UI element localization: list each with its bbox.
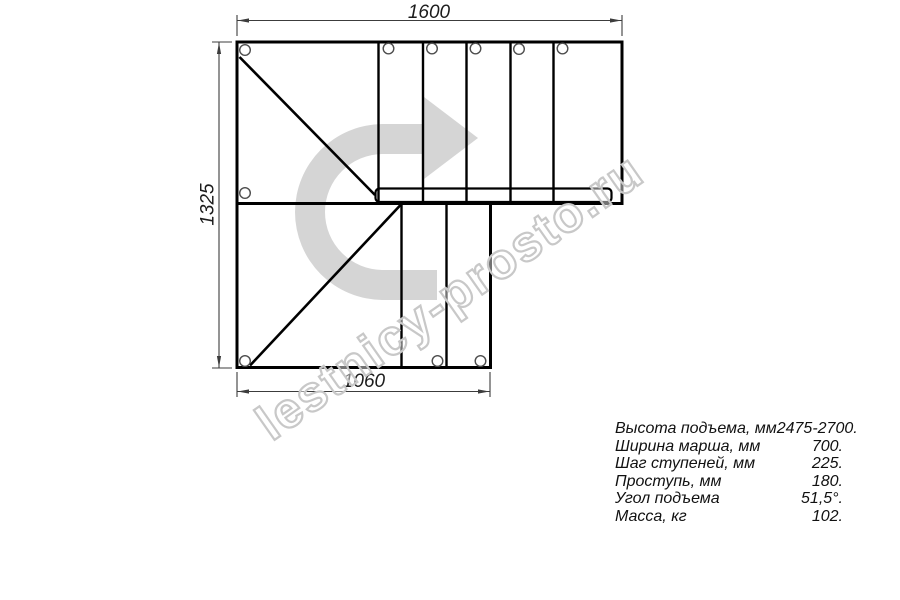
spec-row: Шаг ступеней, мм 225. xyxy=(615,455,843,473)
spec-list: Высота подъема, мм 2475-2700. Ширина мар… xyxy=(615,420,843,526)
stair-plan-page: 1600 1325 1060 lestnicy-prosto.ru Высота… xyxy=(0,0,900,600)
spec-row: Ширина марша, мм 700. xyxy=(615,438,843,456)
spec-row: Проступь, мм 180. xyxy=(615,473,843,491)
spec-label: Угол подъема xyxy=(615,490,720,508)
spec-value: 51,5°. xyxy=(801,490,843,508)
spec-label: Масса, кг xyxy=(615,508,687,526)
spec-value: 180. xyxy=(812,473,843,491)
dimension-left-label: 1325 xyxy=(198,165,217,245)
dimension-top-label: 1600 xyxy=(389,2,469,24)
spec-label: Шаг ступеней, мм xyxy=(615,455,755,473)
spec-row: Угол подъема 51,5°. xyxy=(615,490,843,508)
spec-value: 700. xyxy=(812,438,843,456)
spec-label: Высота подъема, мм xyxy=(615,420,777,438)
spec-row: Масса, кг 102. xyxy=(615,508,843,526)
spec-value: 102. xyxy=(812,508,843,526)
spec-label: Проступь, мм xyxy=(615,473,721,491)
upper-flight-tread-lines xyxy=(379,44,554,203)
spec-value: 2475-2700. xyxy=(777,420,858,438)
spec-row: Высота подъема, мм 2475-2700. xyxy=(615,420,843,438)
spec-label: Ширина марша, мм xyxy=(615,438,760,456)
spec-value: 225. xyxy=(812,455,843,473)
